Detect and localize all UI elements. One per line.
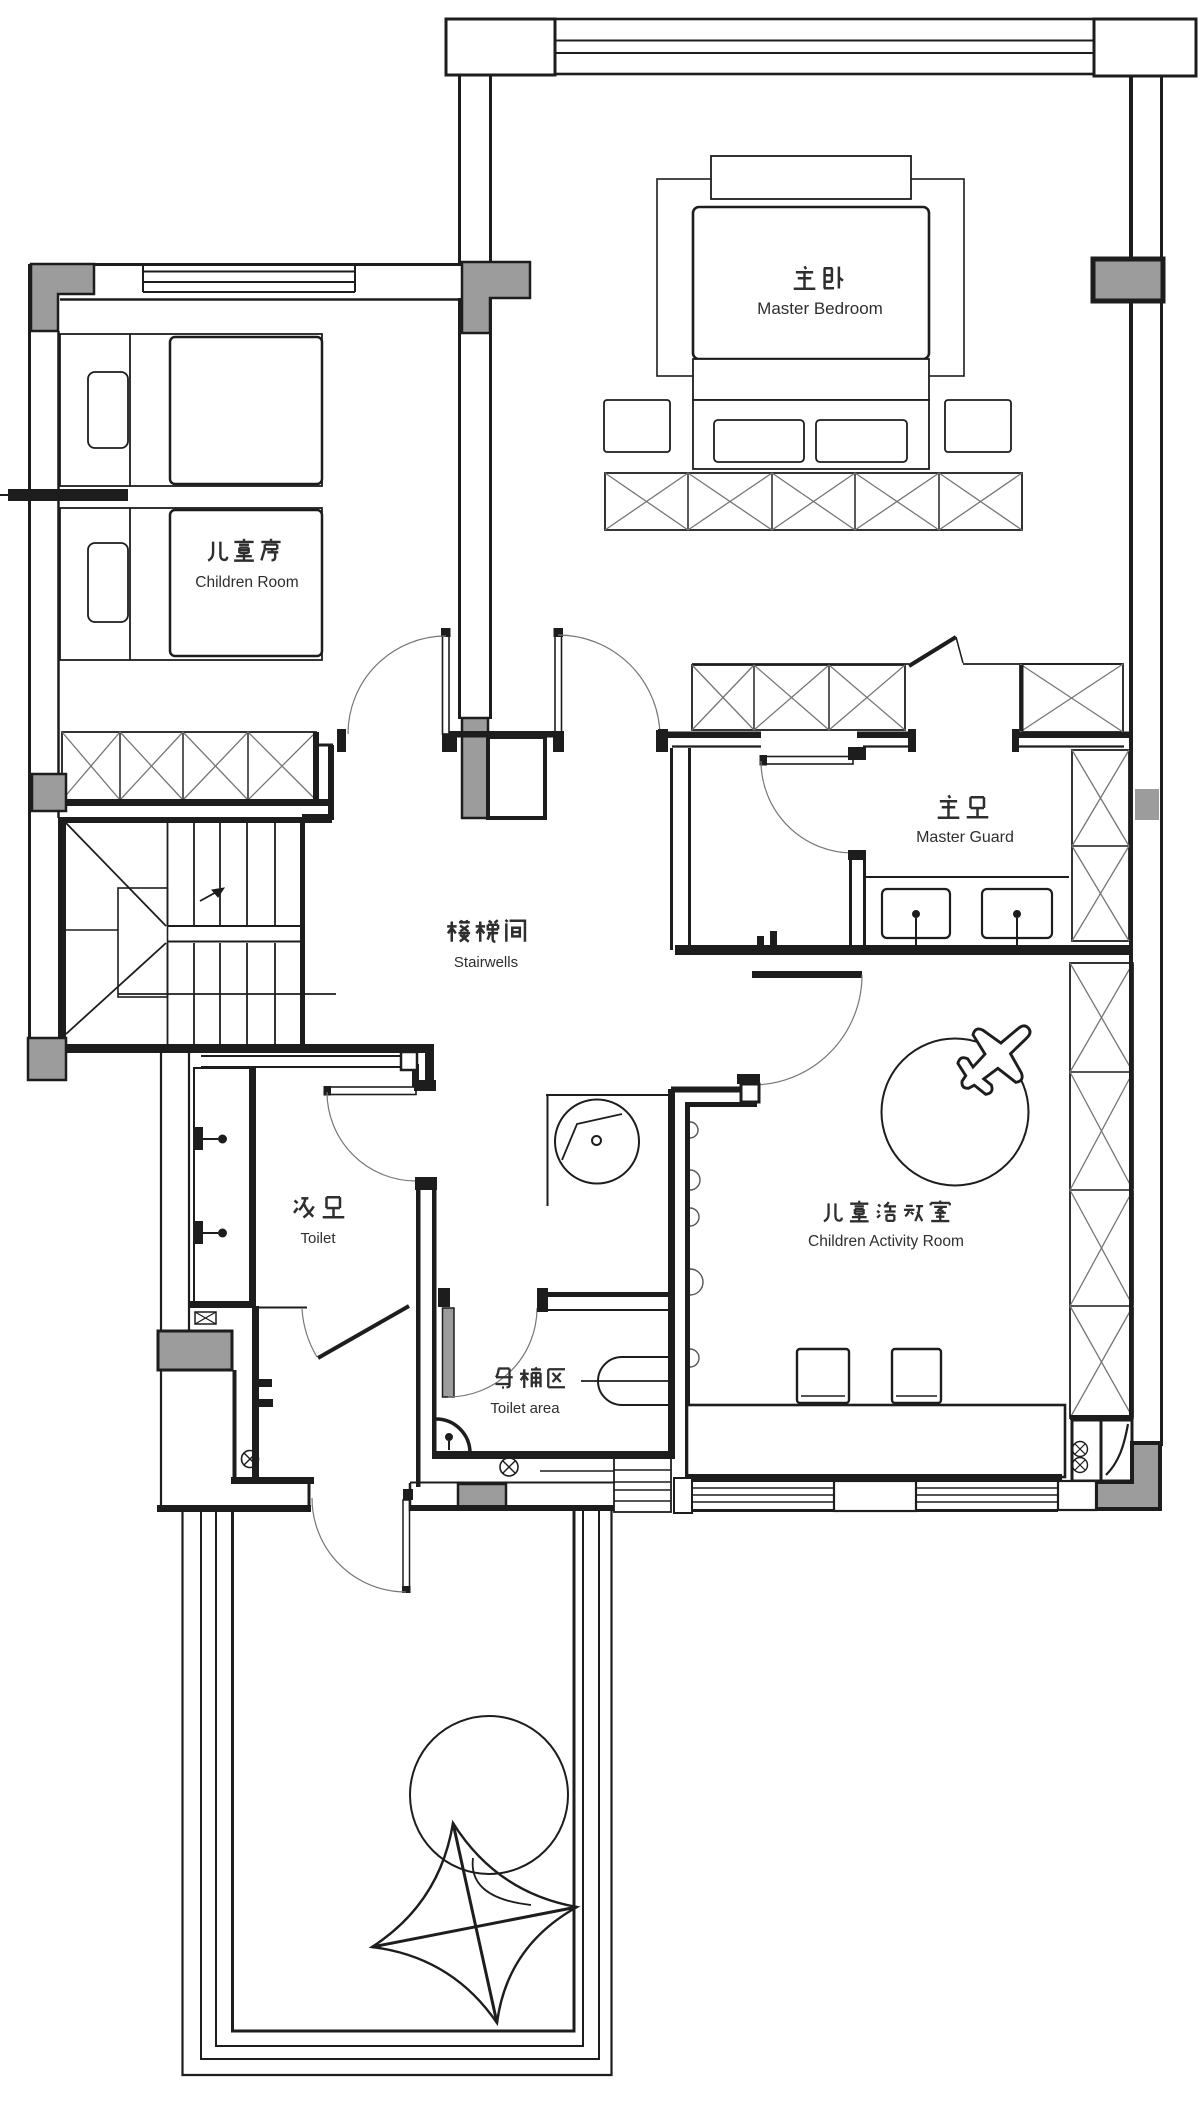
svg-text:Master Bedroom: Master Bedroom — [757, 299, 883, 318]
svg-text:Stairwells: Stairwells — [454, 954, 518, 971]
svg-text:Children Room: Children Room — [195, 574, 298, 591]
svg-text:Master Guard: Master Guard — [916, 829, 1014, 846]
svg-text:Toilet: Toilet — [300, 1230, 336, 1247]
svg-text:Toilet area: Toilet area — [490, 1400, 560, 1417]
svg-text:Children Activity Room: Children Activity Room — [808, 1233, 964, 1250]
